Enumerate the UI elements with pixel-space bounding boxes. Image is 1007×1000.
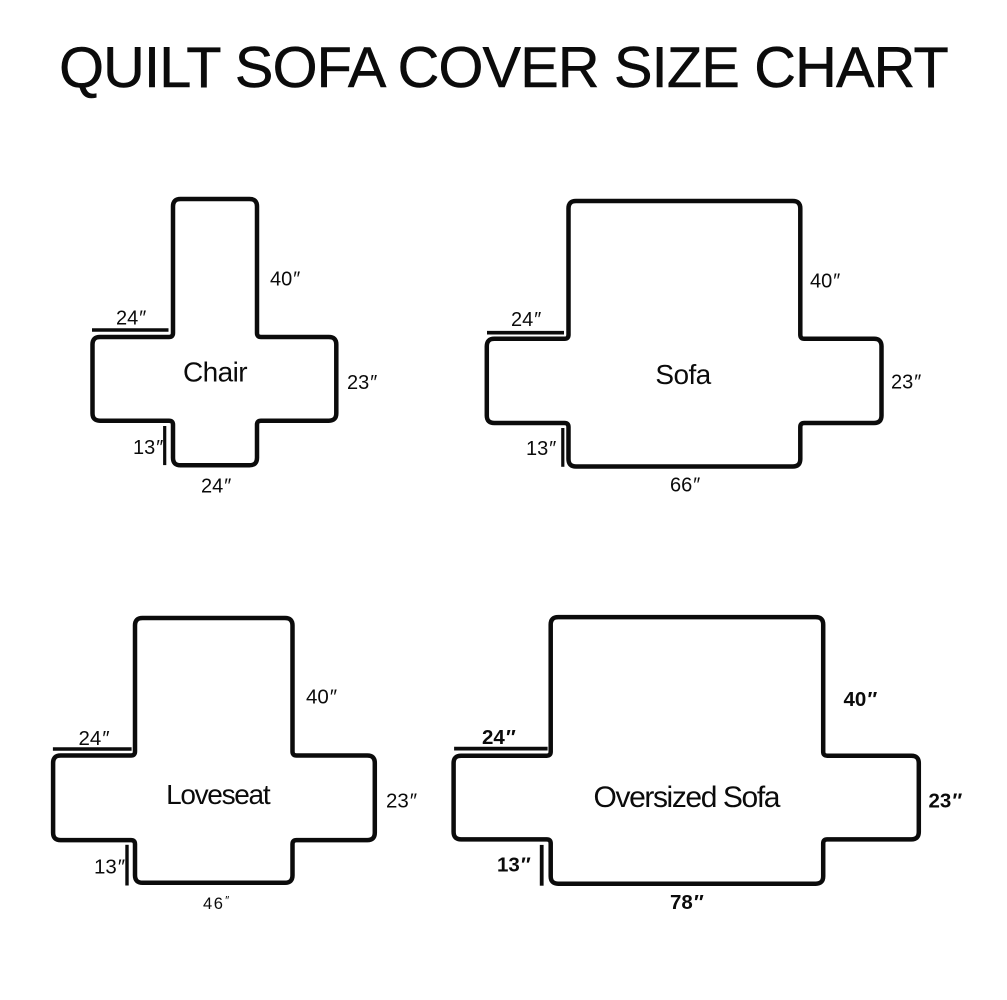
- svg-text:78″: 78″: [670, 891, 704, 914]
- svg-text:23″: 23″: [929, 790, 963, 813]
- svg-text:23″: 23″: [891, 372, 921, 394]
- svg-text:Sofa: Sofa: [655, 359, 711, 390]
- svg-text:QUILT SOFA COVER SIZE CHART: QUILT SOFA COVER SIZE CHART: [59, 36, 948, 100]
- svg-text:40″: 40″: [810, 271, 840, 293]
- svg-text:13″: 13″: [497, 854, 531, 877]
- svg-text:24″: 24″: [116, 308, 146, 330]
- svg-text:13″: 13″: [526, 438, 556, 460]
- svg-text:40″: 40″: [306, 686, 337, 709]
- svg-text:24″: 24″: [511, 309, 541, 331]
- svg-text:40″: 40″: [270, 269, 300, 291]
- svg-text:13″: 13″: [133, 437, 163, 459]
- svg-text:Chair: Chair: [183, 356, 247, 387]
- svg-text:24″: 24″: [201, 476, 231, 498]
- svg-text:24″: 24″: [79, 727, 110, 750]
- svg-text:66″: 66″: [670, 475, 700, 497]
- svg-text:40″: 40″: [844, 688, 878, 711]
- svg-text:Oversized Sofa: Oversized Sofa: [594, 781, 781, 814]
- svg-text:23″: 23″: [386, 790, 417, 813]
- svg-text:13″: 13″: [94, 856, 125, 879]
- svg-text:Loveseat: Loveseat: [166, 779, 271, 810]
- svg-text:23″: 23″: [347, 372, 377, 394]
- svg-text:24″: 24″: [482, 726, 516, 749]
- svg-text:46″: 46″: [203, 895, 230, 913]
